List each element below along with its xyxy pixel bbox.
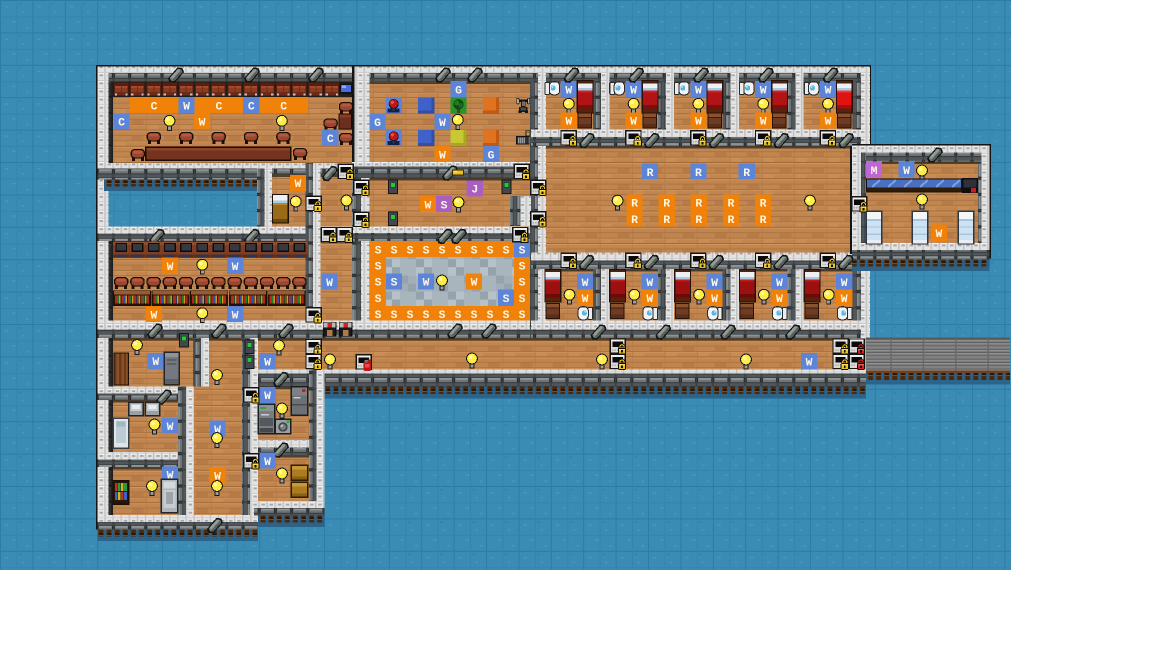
svg-text:W: W — [232, 310, 239, 322]
svg-text:W: W — [776, 278, 783, 290]
svg-text:R: R — [743, 168, 750, 180]
svg-text:R: R — [727, 215, 734, 227]
svg-text:S: S — [423, 310, 430, 322]
svg-text:W: W — [565, 85, 572, 97]
svg-text:S: S — [503, 310, 510, 322]
svg-text:W: W — [841, 278, 848, 290]
svg-text:W: W — [711, 294, 718, 306]
svg-text:W: W — [264, 457, 271, 469]
svg-text:S: S — [455, 245, 462, 257]
svg-text:S: S — [391, 245, 398, 257]
svg-text:R: R — [695, 168, 702, 180]
svg-text:S: S — [471, 245, 478, 257]
svg-text:S: S — [487, 310, 494, 322]
svg-text:W: W — [903, 166, 910, 178]
svg-text:S: S — [375, 294, 382, 306]
svg-text:C: C — [327, 134, 334, 146]
svg-text:S: S — [519, 245, 526, 257]
svg-text:R: R — [663, 215, 670, 227]
svg-text:S: S — [375, 310, 382, 322]
svg-text:W: W — [646, 294, 653, 306]
svg-text:R: R — [663, 199, 670, 211]
svg-text:C: C — [118, 118, 125, 130]
svg-text:S: S — [407, 310, 414, 322]
svg-text:S: S — [439, 245, 446, 257]
svg-text:R: R — [760, 199, 767, 211]
svg-text:W: W — [471, 278, 478, 290]
svg-text:W: W — [760, 85, 767, 97]
svg-text:W: W — [152, 357, 159, 369]
svg-text:W: W — [935, 229, 942, 241]
svg-text:W: W — [695, 117, 702, 129]
svg-text:R: R — [695, 199, 702, 211]
svg-text:W: W — [841, 294, 848, 306]
svg-text:S: S — [439, 310, 446, 322]
svg-text:W: W — [264, 358, 271, 370]
svg-text:S: S — [407, 245, 414, 257]
svg-text:W: W — [646, 278, 653, 290]
svg-text:W: W — [825, 85, 832, 97]
svg-text:S: S — [519, 278, 526, 290]
svg-text:W: W — [424, 200, 431, 212]
svg-text:S: S — [423, 245, 430, 257]
svg-text:S: S — [519, 262, 526, 274]
svg-text:C: C — [280, 102, 287, 114]
svg-text:G: G — [488, 150, 495, 162]
svg-text:W: W — [695, 85, 702, 97]
svg-text:W: W — [150, 310, 157, 322]
svg-text:S: S — [519, 310, 526, 322]
svg-text:S: S — [375, 262, 382, 274]
svg-text:W: W — [630, 117, 637, 129]
svg-text:W: W — [326, 278, 333, 290]
svg-text:W: W — [167, 262, 174, 274]
svg-text:S: S — [503, 245, 510, 257]
svg-text:W: W — [711, 278, 718, 290]
svg-text:S: S — [455, 310, 462, 322]
svg-text:W: W — [232, 262, 239, 274]
svg-text:R: R — [760, 215, 767, 227]
svg-text:R: R — [647, 168, 654, 180]
svg-text:S: S — [487, 245, 494, 257]
svg-text:R: R — [727, 199, 734, 211]
svg-text:S: S — [391, 310, 398, 322]
svg-text:S: S — [519, 294, 526, 306]
svg-text:W: W — [582, 294, 589, 306]
svg-text:W: W — [167, 422, 174, 434]
svg-text:R: R — [631, 199, 638, 211]
svg-text:W: W — [760, 117, 767, 129]
svg-text:W: W — [582, 278, 589, 290]
svg-text:W: W — [630, 85, 637, 97]
svg-text:G: G — [374, 118, 381, 130]
svg-text:C: C — [215, 102, 222, 114]
svg-text:S: S — [375, 245, 382, 257]
svg-text:S: S — [503, 294, 510, 306]
svg-text:S: S — [391, 278, 398, 290]
svg-text:W: W — [439, 118, 446, 130]
svg-text:W: W — [183, 102, 190, 114]
svg-text:W: W — [806, 358, 813, 370]
svg-text:W: W — [825, 117, 832, 129]
svg-text:W: W — [565, 117, 572, 129]
svg-text:C: C — [248, 102, 255, 114]
svg-text:S: S — [375, 278, 382, 290]
svg-text:W: W — [199, 118, 206, 130]
svg-text:W: W — [439, 150, 446, 162]
svg-text:M: M — [871, 166, 878, 178]
svg-text:G: G — [455, 86, 462, 98]
svg-text:W: W — [423, 278, 430, 290]
svg-text:R: R — [695, 215, 702, 227]
svg-text:S: S — [441, 200, 448, 212]
svg-text:S: S — [471, 310, 478, 322]
svg-text:C: C — [151, 102, 158, 114]
svg-text:W: W — [294, 179, 301, 191]
svg-text:W: W — [776, 294, 783, 306]
svg-text:R: R — [631, 215, 638, 227]
svg-text:J: J — [471, 185, 478, 197]
svg-text:W: W — [264, 391, 271, 403]
